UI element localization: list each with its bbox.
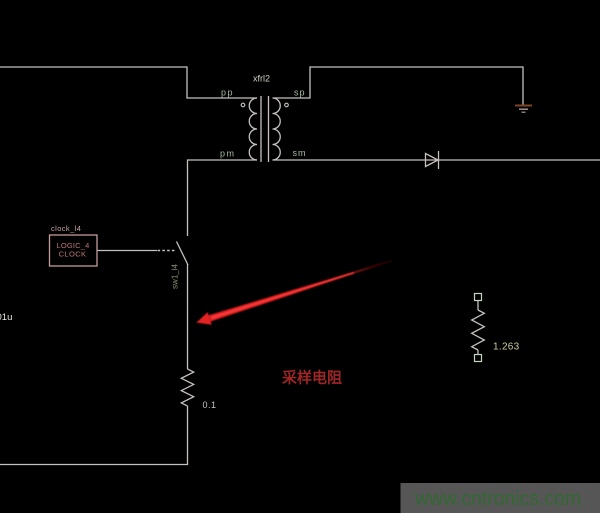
svg-text:CLOCK: CLOCK xyxy=(59,250,87,259)
svg-text:1.263: 1.263 xyxy=(493,342,520,353)
svg-text:01u: 01u xyxy=(0,312,12,323)
svg-text:www.cntronics.com: www.cntronics.com xyxy=(414,487,581,510)
svg-text:pm: pm xyxy=(220,149,236,159)
svg-text:xfrl2: xfrl2 xyxy=(253,74,270,84)
svg-text:sw1_l4: sw1_l4 xyxy=(171,264,180,289)
svg-text:采样电阻: 采样电阻 xyxy=(281,369,342,387)
svg-text:0.1: 0.1 xyxy=(203,400,217,410)
svg-text:pp: pp xyxy=(221,88,234,98)
svg-text:sm: sm xyxy=(293,148,307,158)
svg-text:clock_l4: clock_l4 xyxy=(51,224,81,233)
svg-text:sp: sp xyxy=(294,88,306,98)
